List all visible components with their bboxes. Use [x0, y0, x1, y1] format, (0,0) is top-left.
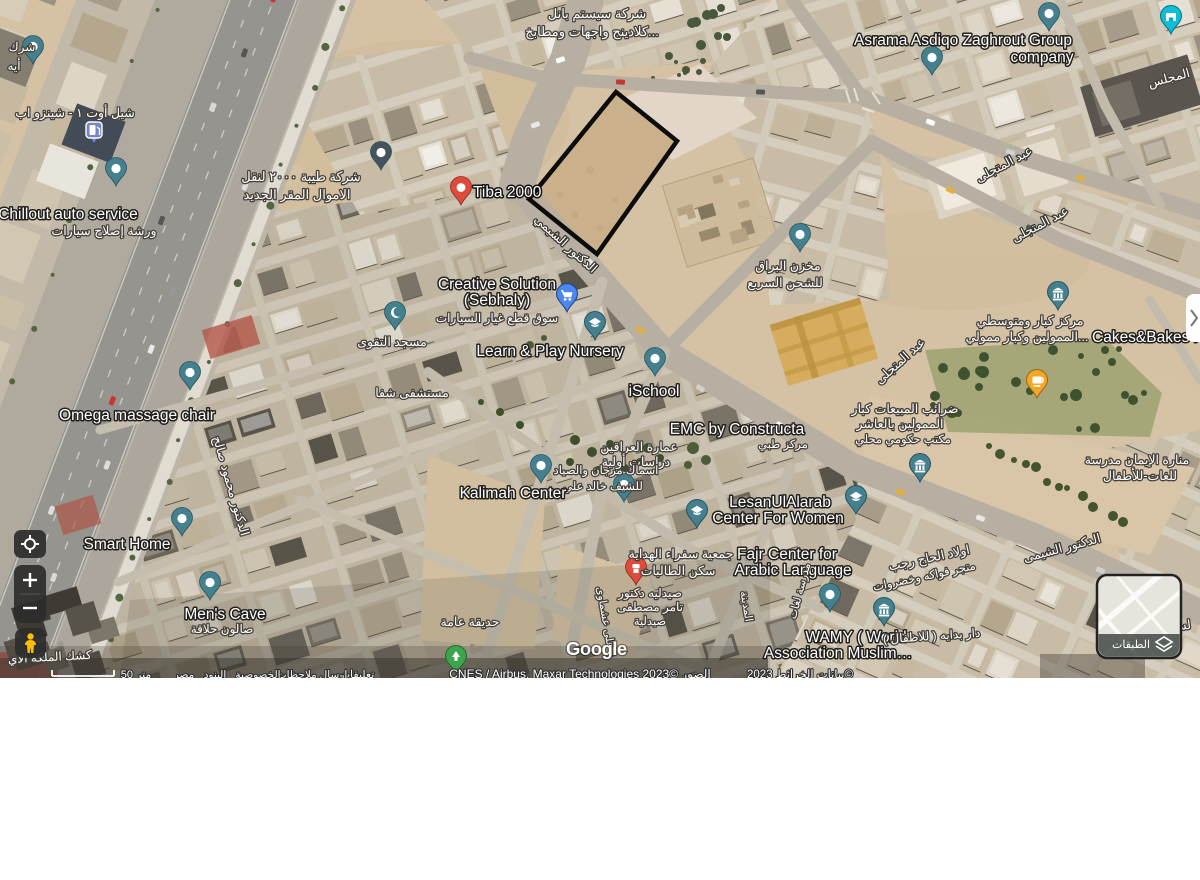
svg-text:الاموال المقر الجديد: الاموال المقر الجديد	[243, 187, 350, 203]
svg-text:(Sebhaly): (Sebhaly)	[464, 292, 530, 309]
svg-text:منارة الإيمان مدرسة: منارة الإيمان مدرسة	[1085, 453, 1190, 468]
svg-text:Asrama Asdiqo Zaghrout Group: Asrama Asdiqo Zaghrout Group	[854, 32, 1072, 49]
svg-text:ضرائب المبيعات كبار: ضرائب المبيعات كبار	[851, 402, 959, 417]
svg-text:صيدلية: صيدلية	[634, 615, 667, 628]
svg-text:سوق قطع غيار السيارات: سوق قطع غيار السيارات	[436, 311, 558, 325]
svg-text:مسجد التقوى: مسجد التقوى	[357, 335, 427, 350]
svg-text:LesanUlAlarab: LesanUlAlarab	[729, 494, 831, 511]
svg-text:مكتب حكومي محلي: مكتب حكومي محلي	[855, 433, 951, 446]
svg-text:للشحن السريع: للشحن السريع	[747, 276, 823, 291]
svg-text:اسماك مرجان والصياد: اسماك مرجان والصياد	[554, 464, 659, 477]
svg-text:للشيف خالد علي: للشيف خالد علي	[563, 480, 643, 493]
svg-text:Chillout auto service: Chillout auto service	[0, 206, 138, 223]
svg-text:الممولين بالعاشر: الممولين بالعاشر	[855, 417, 943, 432]
svg-text:حديقة عامة: حديقة عامة	[441, 615, 500, 629]
svg-text:مركز طبي: مركز طبي	[758, 438, 808, 451]
svg-text:صيدليه دكتور: صيدليه دكتور	[617, 586, 682, 600]
svg-text:Google: Google	[566, 638, 627, 659]
svg-text:مستشفى شفا: مستشفى شفا	[375, 386, 449, 400]
svg-text:أيه: أيه	[7, 58, 20, 73]
svg-text:تامر مصطفى: تامر مصطفى	[617, 600, 683, 614]
svg-text:ورشة إصلاح سيارات: ورشة إصلاح سيارات	[51, 224, 156, 239]
svg-text:Center For Women: Center For Women	[712, 510, 844, 527]
svg-text:سكن الطالبات: سكن الطالبات	[641, 564, 716, 579]
svg-text:الطبقات: الطبقات	[1112, 639, 1150, 651]
svg-text:Omega massage chair: Omega massage chair	[59, 407, 215, 424]
svg-text:Kalimah Center: Kalimah Center	[460, 485, 567, 502]
svg-text:Arabic Language: Arabic Language	[734, 562, 851, 579]
svg-text:جمعية سفراء الهداية: جمعية سفراء الهداية	[629, 547, 734, 562]
svg-text:iSchool: iSchool	[629, 383, 680, 400]
svg-text:Cakes&Bakes P: Cakes&Bakes P	[1092, 329, 1200, 346]
svg-text:شرك: شرك	[9, 40, 36, 54]
svg-text:company: company	[1011, 49, 1074, 66]
svg-text:شيل أوت ١ - شينزو اب: شيل أوت ١ - شينزو اب	[15, 104, 134, 121]
svg-text:Men's Cave: Men's Cave	[184, 606, 265, 623]
svg-text:كلادينج واجهات ومطابخ...: كلادينج واجهات ومطابخ...	[525, 24, 659, 40]
svg-text:EMC by Constructa: EMC by Constructa	[670, 421, 805, 438]
svg-text:Association Muslim…: Association Muslim…	[764, 645, 912, 662]
svg-text:صالون حلاقة: صالون حلاقة	[191, 622, 254, 636]
svg-text:عمارة العراقين: عمارة العراقين	[600, 440, 678, 455]
svg-text:Smart Home: Smart Home	[84, 536, 171, 553]
svg-text:شركة طيبة ٢٠٠٠ لنقل: شركة طيبة ٢٠٠٠ لنقل	[241, 169, 360, 185]
svg-text:الممولين وكبار ممولي...: الممولين وكبار ممولي...	[966, 330, 1089, 345]
svg-text:Learn & Play Nursery: Learn & Play Nursery	[476, 343, 624, 360]
svg-text:Tiba 2000: Tiba 2000	[473, 184, 542, 201]
svg-text:Creative Solution: Creative Solution	[438, 276, 556, 293]
svg-text:للغات-للأطفال: للغات-للأطفال	[1103, 467, 1177, 483]
svg-text:Fajr Center for: Fajr Center for	[737, 546, 837, 563]
svg-text:شركة سيستم بانل: شركة سيستم بانل	[548, 6, 646, 22]
svg-text:مركز كبار ومتوسطي: مركز كبار ومتوسطي	[976, 314, 1083, 329]
svg-text:مخزن البراق: مخزن البراق	[755, 259, 820, 274]
